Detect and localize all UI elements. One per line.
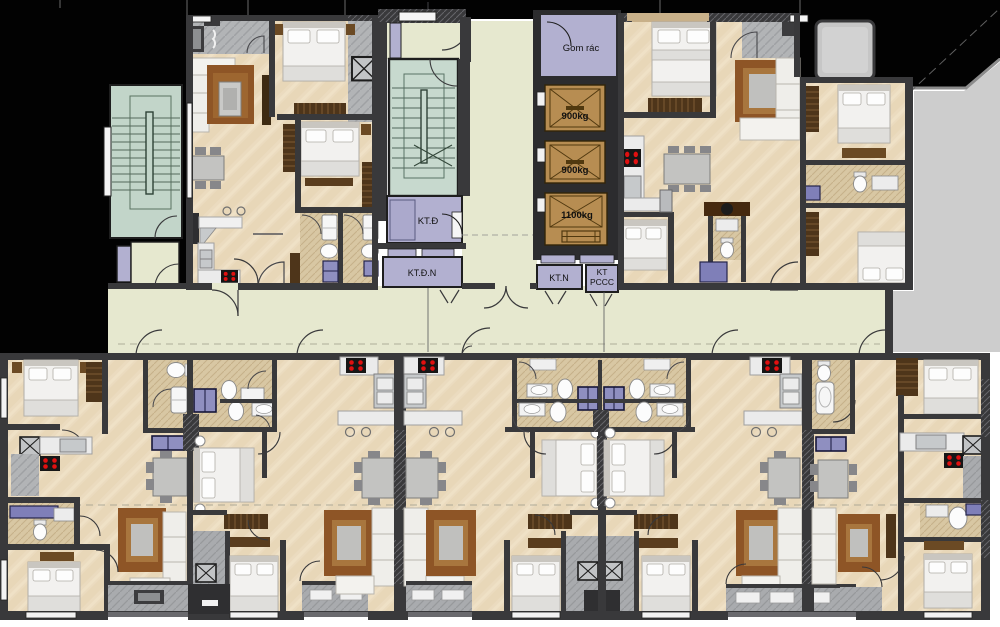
svg-text:1100kg: 1100kg — [561, 210, 593, 221]
svg-text:KT: KT — [597, 267, 608, 277]
svg-text:KT.N: KT.N — [549, 273, 569, 283]
svg-text:PCCC: PCCC — [590, 277, 614, 287]
svg-text:Gom rác: Gom rác — [563, 43, 600, 54]
svg-text:900kg: 900kg — [562, 111, 589, 122]
svg-text:900kg: 900kg — [562, 165, 589, 176]
svg-text:KT.Đ: KT.Đ — [418, 216, 439, 227]
svg-text:KT.Đ.N: KT.Đ.N — [408, 268, 437, 278]
